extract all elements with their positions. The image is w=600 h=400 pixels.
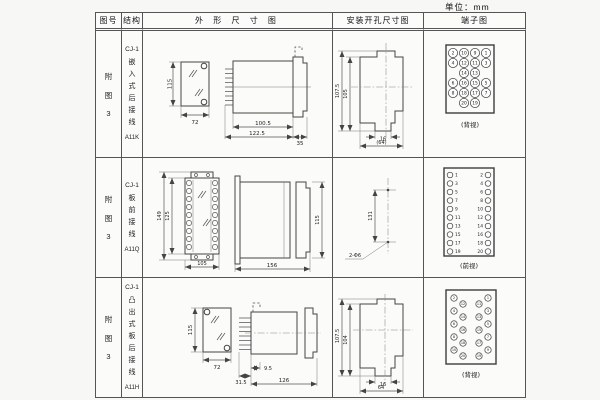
terminal-number: 16 xyxy=(461,81,467,87)
figure-no-cell-row2: 附 图 3 xyxy=(96,158,122,278)
terminal-pin xyxy=(485,181,491,187)
type-char: 线 xyxy=(129,117,136,129)
terminal-number: 6 xyxy=(452,81,455,87)
outline-diagram-a11k: 115 72 100.5 xyxy=(143,31,332,157)
terminal-number: 20 xyxy=(461,354,465,358)
relay-spec-table: 图号 结构 外 形 尺 寸 图 安装开孔尺寸图 端子图 附 图 3 CJ-1 嵌… xyxy=(95,12,526,398)
terminal-number: 14 xyxy=(461,71,467,77)
dim-side-l1: 100.5 xyxy=(255,121,271,127)
dim-front-height: 115 xyxy=(188,324,194,335)
terminal-grid-a11q: 1234567891011121314151617181920 xyxy=(447,172,491,255)
terminal-number: 7 xyxy=(455,198,458,204)
terminal-grid-a11h: 2121114141336161558181771020199 xyxy=(451,295,491,359)
terminal-diagram-a11h: 2121114141336161558181771020199 (背视) xyxy=(424,278,525,397)
terminal-number: 19 xyxy=(477,354,481,358)
terminal-number: 3 xyxy=(455,181,458,187)
front-view: 149 125 105 xyxy=(157,172,219,270)
side-view: 100.5 122.5 35 xyxy=(225,47,311,147)
type-char: 线 xyxy=(129,229,136,241)
terminal-number: 19 xyxy=(472,101,478,107)
figure-char: 3 xyxy=(106,109,110,118)
type-char: 后 xyxy=(129,343,136,355)
terminal-diagram-a11q: 1234567891011121314151617181920 (前视) xyxy=(424,158,525,277)
terminal-pin xyxy=(447,198,453,204)
terminal-number: 1 xyxy=(485,51,488,57)
terminal-number: 13 xyxy=(455,224,461,230)
model-label: CJ-1 xyxy=(125,180,139,192)
dim-inner-height: 105 xyxy=(343,89,349,99)
terminal-number: 17 xyxy=(477,341,481,345)
type-char: 板 xyxy=(129,193,136,205)
mounting-diagram-a11h: 107.5 104 16 64 xyxy=(333,278,423,397)
mounting-diagram-a11k: 107.5 105 16 (64) xyxy=(333,31,423,157)
terminal-number: 9 xyxy=(455,207,458,213)
figure-char: 附 xyxy=(105,194,113,205)
terminal-pin xyxy=(485,223,491,229)
terminal-cell-row2: 1234567891011121314151617181920 (前视) xyxy=(424,158,526,278)
terminal-cell-row1: 2109141211314136161558181772019 (背视) xyxy=(424,31,526,158)
dim-outer-width: (64) xyxy=(376,140,386,146)
code-label: A11H xyxy=(125,382,140,394)
type-char: 接 xyxy=(129,105,136,117)
view-label: (前视) xyxy=(460,261,478,270)
hole-spec-label: 2-Φ6 xyxy=(349,253,361,259)
terminal-number: 11 xyxy=(455,215,461,221)
terminal-number: 5 xyxy=(487,322,489,326)
figure-char: 附 xyxy=(105,314,113,325)
dim-outer-height: 107.5 xyxy=(335,84,341,98)
terminal-pin xyxy=(485,215,491,221)
terminal-pin xyxy=(485,189,491,195)
datasheet-page: 单位：mm 图号 结构 外 形 尺 寸 图 安装开孔尺寸图 端子图 附 图 3 … xyxy=(0,0,600,400)
model-label: CJ-1 xyxy=(125,44,139,56)
terminal-number: 3 xyxy=(487,309,489,313)
header-mounting: 安装开孔尺寸图 xyxy=(333,13,424,31)
terminal-number: 16 xyxy=(461,328,465,332)
terminal-number: 12 xyxy=(461,61,467,67)
view-label: (背视) xyxy=(461,120,479,129)
header-terminal: 端子图 xyxy=(424,13,526,31)
type-char: 出 xyxy=(129,307,136,319)
terminal-number: 4 xyxy=(480,181,483,187)
terminal-pin xyxy=(447,172,453,178)
dim-side-length: 126 xyxy=(279,378,290,384)
terminal-number: 20 xyxy=(477,249,483,255)
outline-cell-row3: 115 72 9.5 xyxy=(143,278,333,398)
terminal-number: 2 xyxy=(480,173,483,179)
figure-char: 3 xyxy=(106,352,110,361)
header-figure-no: 图号 xyxy=(96,13,122,31)
mounting-cell-row2: 131 2-Φ6 xyxy=(333,158,424,278)
terminal-pin xyxy=(447,232,453,238)
type-char: 式 xyxy=(129,81,136,93)
model-label: CJ-1 xyxy=(125,282,139,294)
code-label: A11K xyxy=(125,132,139,144)
terminal-pin xyxy=(447,240,453,246)
terminal-number: 5 xyxy=(455,190,458,196)
terminal-number: 1 xyxy=(455,173,458,179)
type-char: 后 xyxy=(129,93,136,105)
dim-front-width: 105 xyxy=(197,261,207,267)
outline-cell-row1: 115 72 100.5 xyxy=(143,31,333,158)
terminal-number: 17 xyxy=(472,91,478,97)
terminal-number: 8 xyxy=(480,198,483,204)
type-char: 凸 xyxy=(129,295,136,307)
dim-front-height: 115 xyxy=(168,78,174,89)
terminal-pin xyxy=(447,249,453,255)
terminal-pin xyxy=(447,181,453,187)
terminal-number: 16 xyxy=(477,232,483,238)
terminal-diagram-a11k: 2109141211314136161558181772019 (背视) xyxy=(424,31,525,157)
terminal-number: 3 xyxy=(485,61,488,67)
latch-clip xyxy=(253,303,260,312)
dim-side-height: 115 xyxy=(315,215,321,225)
terminal-number: 4 xyxy=(453,309,455,313)
figure-char: 附 xyxy=(105,71,113,82)
terminal-number: 18 xyxy=(461,341,465,345)
terminal-pin xyxy=(447,206,453,212)
dim-hole-distance: 131 xyxy=(368,211,374,221)
terminal-number: 1 xyxy=(487,296,489,300)
terminal-number: 6 xyxy=(453,322,455,326)
terminal-number: 5 xyxy=(485,81,488,87)
terminal-pin xyxy=(485,198,491,204)
outline-diagram-a11q: 149 125 105 xyxy=(143,158,332,277)
type-char: 前 xyxy=(129,205,136,217)
terminal-number: 11 xyxy=(472,61,478,67)
structure-cell-row2: CJ-1 板 前 接 线 A11Q xyxy=(122,158,143,278)
cutout-shape xyxy=(360,51,403,131)
outline-cell-row2: 149 125 105 xyxy=(143,158,333,278)
terminal-number: 9 xyxy=(474,51,477,57)
side-view: 156 115 xyxy=(235,176,325,272)
terminal-number: 7 xyxy=(487,335,489,339)
terminal-number: 8 xyxy=(452,91,455,97)
structure-cell-row3: CJ-1 凸 出 式 板 后 接 线 A11H xyxy=(122,278,143,398)
terminal-pin xyxy=(485,172,491,178)
terminal-number: 20 xyxy=(461,101,467,107)
type-char: 板 xyxy=(129,331,136,343)
figure-char: 图 xyxy=(105,333,113,344)
terminal-number: 18 xyxy=(461,91,467,97)
dim-offset: 9.5 xyxy=(264,366,272,372)
terminal-number: 11 xyxy=(477,302,481,306)
terminal-number: 10 xyxy=(452,348,456,352)
terminal-number: 10 xyxy=(477,207,483,213)
terminal-number: 19 xyxy=(455,249,461,255)
front-view: 115 72 xyxy=(168,62,210,126)
header-structure: 结构 xyxy=(122,13,143,31)
figure-char: 图 xyxy=(105,90,113,101)
terminal-number: 12 xyxy=(461,302,465,306)
figure-no-cell-row1: 附 图 3 xyxy=(96,31,122,158)
terminal-number: 4 xyxy=(452,61,455,67)
terminal-number: 2 xyxy=(453,296,455,300)
dim-side-length: 156 xyxy=(267,263,278,269)
dim-front-height: 149 xyxy=(157,211,163,221)
view-label: (背视) xyxy=(462,370,480,379)
terminal-number: 6 xyxy=(480,190,483,196)
terminal-pin xyxy=(447,215,453,221)
figure-no-cell-row3: 附 图 3 xyxy=(96,278,122,398)
terminal-number: 14 xyxy=(477,224,483,230)
terminal-number: 15 xyxy=(477,328,481,332)
terminal-screws xyxy=(186,180,217,249)
mounting-diagram-a11q: 131 2-Φ6 xyxy=(333,158,423,277)
terminal-number: 8 xyxy=(453,335,455,339)
terminal-cell-row3: 2121114141336161558181771020199 (背视) xyxy=(424,278,526,398)
dim-side-depth: 35 xyxy=(297,141,304,147)
side-view: 9.5 31.5 126 xyxy=(235,303,321,386)
terminal-number: 10 xyxy=(461,51,467,57)
header-outline: 外 形 尺 寸 图 xyxy=(143,13,333,31)
dim-inner-height: 104 xyxy=(343,335,349,345)
dim-outer-height: 107.5 xyxy=(335,329,341,343)
terminal-number: 17 xyxy=(455,241,461,247)
terminal-pin xyxy=(485,232,491,238)
dim-front-width: 72 xyxy=(214,365,221,371)
dim-pin-length: 31.5 xyxy=(235,380,246,386)
type-char: 式 xyxy=(129,319,136,331)
terminal-pin xyxy=(485,206,491,212)
terminal-pin xyxy=(447,223,453,229)
front-view: 115 72 xyxy=(188,308,231,371)
type-char: 线 xyxy=(129,367,136,379)
dim-outer-width: 64 xyxy=(378,385,384,391)
terminal-pin xyxy=(485,249,491,255)
terminal-number: 18 xyxy=(477,241,483,247)
terminal-pin xyxy=(485,240,491,246)
type-char: 入 xyxy=(129,69,136,81)
dim-front-width: 72 xyxy=(192,120,199,126)
mounting-cell-row3: 107.5 104 16 64 xyxy=(333,278,424,398)
terminal-number: 7 xyxy=(485,91,488,97)
dim-side-l2: 122.5 xyxy=(249,131,265,137)
type-char: 接 xyxy=(129,217,136,229)
terminal-grid-a11k: 2109141211314136161558181772019 xyxy=(448,48,490,107)
terminal-number: 13 xyxy=(472,71,478,77)
terminal-number: 12 xyxy=(477,215,483,221)
terminal-number: 2 xyxy=(452,51,455,57)
terminal-number: 13 xyxy=(477,315,481,319)
type-char: 嵌 xyxy=(129,57,136,69)
terminal-number: 15 xyxy=(472,81,478,87)
structure-cell-row1: CJ-1 嵌 入 式 后 接 线 A11K xyxy=(122,31,143,158)
terminal-number: 14 xyxy=(461,315,465,319)
terminal-number: 15 xyxy=(455,232,461,238)
outline-diagram-a11h: 115 72 9.5 xyxy=(143,278,332,397)
mounting-cell-row1: 107.5 105 16 (64) xyxy=(333,31,424,158)
terminal-pin xyxy=(447,189,453,195)
figure-char: 图 xyxy=(105,213,113,224)
terminal-number: 9 xyxy=(487,348,489,352)
cutout-shape xyxy=(360,299,403,376)
latch-clip xyxy=(295,47,302,57)
code-label: A11Q xyxy=(125,244,140,256)
mounting-hole-top xyxy=(387,189,390,192)
figure-char: 3 xyxy=(106,232,110,241)
dim-front-height2: 125 xyxy=(165,211,171,221)
type-char: 接 xyxy=(129,355,136,367)
